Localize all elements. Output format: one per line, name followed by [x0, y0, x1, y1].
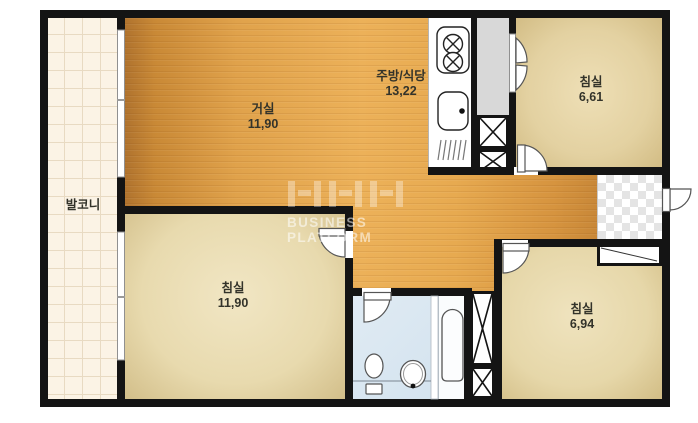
bedroom-bl-area: 11,90 [183, 296, 283, 311]
label-living: 거실 11,90 [213, 102, 313, 132]
bedroom-tr-name: 침실 [541, 75, 641, 90]
label-kitchen: 주방/식당 13,22 [351, 69, 451, 99]
wall-kitchen-bottom [428, 167, 670, 175]
wall-living-bedroom [117, 206, 353, 214]
balcony-name: 발코니 [33, 198, 133, 213]
entrance-area [597, 175, 663, 239]
living-name: 거실 [213, 102, 313, 117]
label-bedroom-bl: 침실 11,90 [183, 281, 283, 311]
wall-counter-right [471, 17, 477, 167]
wall-bedroom-br-left [494, 239, 502, 407]
kitchen-storage-gray [477, 17, 509, 118]
hall-closet-2 [470, 366, 495, 399]
wall-bathroom-top [345, 288, 472, 296]
wall-bedroom-br-top [494, 239, 670, 247]
label-balcony: 발코니 [33, 198, 133, 213]
bedroom-tr-area: 6,61 [541, 90, 641, 105]
label-bedroom-tr: 침실 6,61 [541, 75, 641, 105]
wall-outer-bottom [40, 399, 670, 407]
watermark-subtitle: BUSINESS PLATFORM [287, 215, 457, 245]
floor-plan: BUSINESS PLATFORM 발코니 거실 11,90 주방/식당 13,… [0, 0, 698, 423]
living-area: 11,90 [213, 117, 313, 132]
wall-bedroom-tr-left [509, 17, 516, 167]
bedroom-br-area: 6,94 [532, 317, 632, 332]
kitchen-name: 주방/식당 [351, 69, 451, 84]
bedroom-bl-name: 침실 [183, 281, 283, 296]
bathtub-zone [438, 296, 465, 399]
hall-closet-1 [470, 291, 495, 366]
bedroom-br-name: 침실 [532, 302, 632, 317]
kitchen-area: 13,22 [351, 84, 451, 99]
wall-outer-right [662, 10, 670, 407]
label-bedroom-br: 침실 6,94 [532, 302, 632, 332]
wall-bathroom-right [464, 288, 472, 407]
nhn-logo-watermark [288, 181, 408, 207]
kitchen-closet-1 [477, 115, 509, 149]
wall-outer-top [40, 10, 670, 18]
